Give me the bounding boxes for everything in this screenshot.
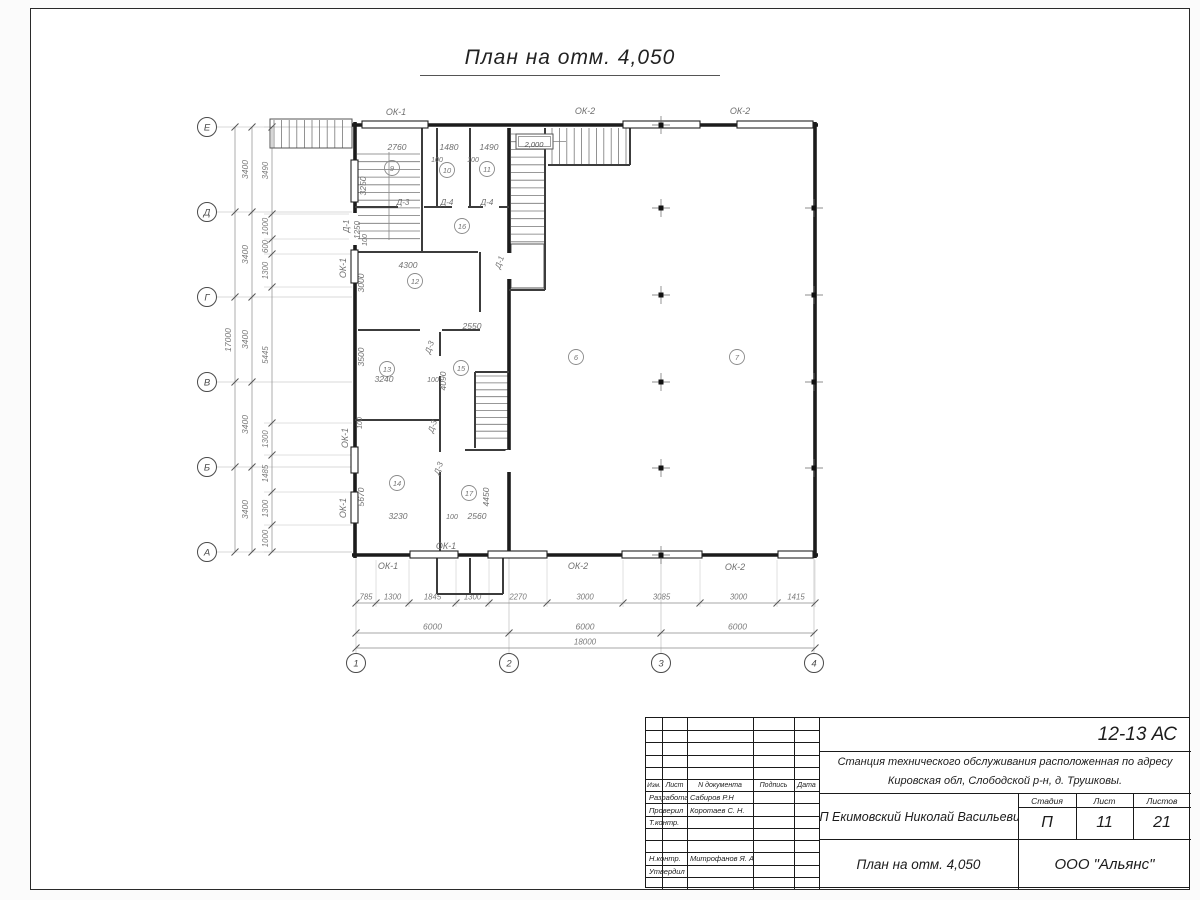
- plan-label: Д-4: [480, 198, 494, 207]
- elevation-value: 2,000: [524, 140, 545, 149]
- drawing-title: План на отм. 4,050: [819, 839, 1018, 889]
- plan-label: 3240: [375, 374, 394, 384]
- axis-letter-label: Г: [204, 292, 210, 303]
- dim-label: 3400: [240, 330, 250, 349]
- column-mark: [659, 206, 664, 211]
- title-block-line: [646, 755, 819, 756]
- dim-label: 3000: [730, 593, 748, 602]
- window-strip: [410, 551, 458, 558]
- dim-label: 1415: [787, 593, 805, 602]
- header-col-ndoc: N документа: [687, 779, 753, 791]
- header-col-list: Лист: [662, 779, 687, 791]
- plan-label: ОК-2: [575, 106, 595, 116]
- title-block-line: [646, 865, 819, 866]
- plan-label: ОК-1: [386, 107, 406, 117]
- plan-label: 4090: [438, 371, 448, 390]
- dim-label: 1300: [261, 499, 270, 517]
- title-block-line: [646, 779, 819, 780]
- axis-letter-label: Е: [204, 122, 211, 133]
- sheet-label: Лист: [1076, 794, 1133, 807]
- room-number: 16: [458, 222, 467, 231]
- plan-label: 1490: [480, 142, 499, 152]
- plan-label: 5670: [356, 487, 366, 506]
- plan-label: ОК-1: [338, 498, 348, 518]
- plan-label: 100: [467, 157, 479, 164]
- dim-label: 3400: [240, 500, 250, 519]
- window-strip: [737, 121, 813, 128]
- column-mark: [659, 293, 664, 298]
- role-tcontrol-label: Т.контр.: [646, 816, 687, 828]
- title-block-line: [646, 816, 819, 817]
- plan-label: ОК-1: [378, 561, 398, 571]
- title-block-line: [646, 828, 819, 829]
- sheet-value: 11: [1076, 807, 1133, 839]
- sheets-value: 21: [1133, 807, 1191, 839]
- plan-label: 1480: [440, 142, 459, 152]
- plan-label: Д-1: [493, 255, 506, 271]
- plan-label: ОК-1: [340, 428, 350, 448]
- title-block-line: [819, 839, 1191, 840]
- axis-letter-label: Б: [204, 462, 210, 473]
- window-strip: [778, 551, 813, 558]
- dim-label: 1300: [261, 430, 270, 448]
- plan-label: 100: [362, 234, 369, 246]
- dim-label: 6000: [728, 622, 747, 632]
- dim-label: 2270: [508, 593, 527, 602]
- column-mark: [812, 466, 817, 471]
- plan-label: 2760: [387, 142, 407, 152]
- room-number: 7: [735, 353, 740, 362]
- header-col-podpis: Подпись: [753, 779, 794, 791]
- header-col-izm: Изм.: [646, 779, 662, 791]
- dim-label: 1300: [384, 593, 402, 602]
- plan-label: 100: [431, 157, 443, 164]
- title-block-line: [646, 791, 819, 792]
- title-block: 12-13 АС Станция технического обслуживан…: [645, 717, 1190, 888]
- plan-label: 3500: [356, 347, 366, 366]
- dim-label: 1300: [261, 261, 270, 279]
- dim-label: 6000: [423, 622, 442, 632]
- project-description-line1: Станция технического обслуживания распол…: [819, 752, 1191, 772]
- plan-label: 1250: [353, 221, 362, 239]
- axis-letter-label: Д: [203, 207, 211, 218]
- room-number: 6: [574, 353, 579, 362]
- dim-label: 3400: [240, 245, 250, 264]
- title-block-line: [646, 742, 819, 743]
- dim-label: 1000: [261, 217, 270, 235]
- dim-label: 3490: [261, 161, 270, 179]
- title-block-line: [1076, 794, 1077, 839]
- plan-label: 3000: [356, 273, 366, 292]
- title-block-line: [646, 852, 819, 853]
- dim-label: 785: [359, 593, 373, 602]
- plan-label: 3230: [389, 511, 408, 521]
- axis-number-label: 1: [353, 658, 358, 669]
- role-checked-label: Проверил: [646, 804, 687, 816]
- header-col-data: Дата: [794, 779, 819, 791]
- title-block-line: [646, 877, 819, 878]
- organization-name: ООО "Альянс": [1018, 839, 1191, 889]
- title-block-line: [1133, 794, 1134, 839]
- dim-label: 3400: [240, 415, 250, 434]
- room-number: 13: [383, 365, 392, 374]
- stage-value: П: [1018, 807, 1076, 839]
- plan-label: 2560: [467, 511, 487, 521]
- plan-label: Д-1: [342, 220, 351, 234]
- axis-number-label: 3: [658, 658, 664, 669]
- plan-label: Д-3: [423, 339, 436, 356]
- dim-label: 3400: [240, 160, 250, 179]
- window-strip: [351, 447, 358, 473]
- plan-title: План на отм. 4,050: [420, 46, 720, 76]
- client-name: ИП Екимовский Николай Васильевич: [819, 794, 1018, 839]
- exterior-stair-outline: [270, 119, 352, 148]
- window-strip: [351, 160, 358, 202]
- role-checked-name: Коротаев С. Н.: [687, 804, 753, 816]
- dim-label: 6000: [576, 622, 595, 632]
- dim-label: 3000: [576, 593, 594, 602]
- window-strip: [362, 121, 428, 128]
- plan-label: 100: [446, 514, 458, 521]
- door-opening: [506, 253, 514, 279]
- plan-label: ОК-2: [730, 106, 750, 116]
- dim-total-label: 18000: [574, 638, 597, 647]
- axis-number-label: 4: [811, 658, 816, 669]
- dim-label: 3085: [653, 593, 671, 602]
- dim-total-label: 17000: [223, 328, 233, 352]
- title-block-line: [646, 840, 819, 841]
- plan-label: 4450: [481, 487, 491, 506]
- column-mark: [812, 380, 817, 385]
- axis-number-label: 2: [505, 658, 512, 669]
- dim-label: 1000: [261, 529, 270, 547]
- title-block-line: [646, 730, 819, 731]
- plan-label: 3250: [358, 176, 368, 195]
- document-code: 12-13 АС: [819, 718, 1191, 751]
- column-mark: [812, 293, 817, 298]
- axis-letter-label: В: [204, 377, 211, 388]
- room-number: 10: [443, 166, 452, 175]
- column-mark: [659, 553, 664, 558]
- plan-label: Д-3: [432, 460, 445, 477]
- room-number: 9: [390, 164, 395, 173]
- plan-label: 100: [357, 417, 364, 429]
- dim-label: 1485: [261, 464, 270, 482]
- role-ncontrol-label: Н.контр.: [646, 852, 687, 865]
- axis-letter-label: А: [203, 547, 210, 558]
- column-mark: [659, 380, 664, 385]
- plan-label: ОК-2: [568, 561, 588, 571]
- door-opening: [506, 450, 514, 472]
- plan-label: 4300: [399, 260, 418, 270]
- plan-label: ОК-1: [338, 258, 348, 278]
- window-strip: [488, 551, 547, 558]
- room-number: 17: [465, 489, 474, 498]
- title-block-line: [819, 751, 1191, 752]
- column-mark: [659, 123, 664, 128]
- role-ncontrol-name: Митрофанов Я. А.: [687, 852, 753, 865]
- room-number: 14: [393, 479, 401, 488]
- plan-label: ОК-2: [725, 562, 745, 572]
- stage-label: Стадия: [1018, 794, 1076, 807]
- dim-label: 5445: [261, 346, 270, 364]
- column-mark: [659, 466, 664, 471]
- column-mark: [812, 206, 817, 211]
- role-approved-label: Утвердил: [646, 865, 687, 877]
- title-block-line: [1018, 794, 1019, 889]
- plan-label: 2550: [462, 321, 482, 331]
- plan-label: Д-4: [440, 198, 454, 207]
- room-number: 11: [483, 165, 491, 174]
- plan-label: Д-3: [396, 198, 410, 207]
- dim-label: 600: [261, 239, 270, 253]
- stair-landing: [511, 244, 544, 288]
- project-description-line2: Кировская обл, Слободской р-н, д. Трушко…: [819, 771, 1191, 791]
- title-block-line: [646, 803, 819, 804]
- title-block-line: [819, 793, 1191, 794]
- room-number: 15: [457, 364, 466, 373]
- title-block-line: [1018, 807, 1191, 808]
- plan-label: ОК-1: [436, 541, 456, 551]
- room-number: 12: [411, 277, 420, 286]
- title-block-line: [646, 767, 819, 768]
- sheets-label: Листов: [1133, 794, 1191, 807]
- title-block-line: [819, 718, 820, 889]
